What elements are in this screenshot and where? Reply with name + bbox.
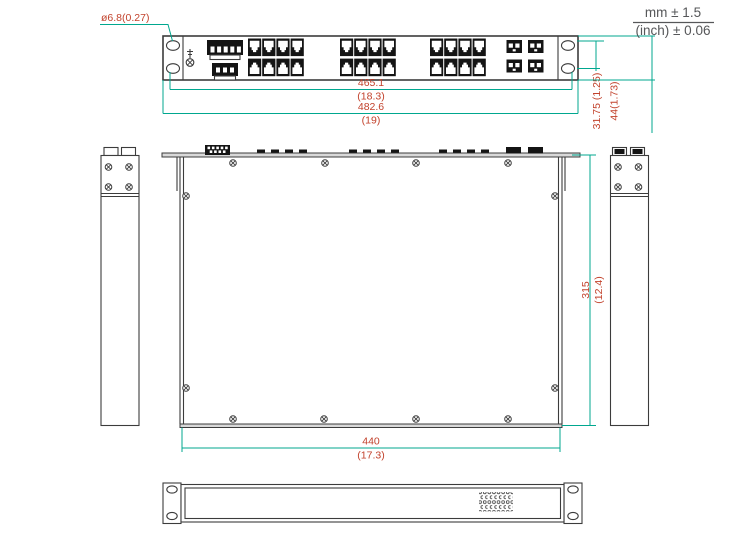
tolerance-imperial-label: (inch) ± 0.06 [636, 23, 711, 38]
rj45-port-icon [458, 59, 471, 77]
rj45-port-icon [383, 39, 396, 57]
screw-icon [322, 160, 329, 167]
rj45-port-icon [248, 39, 261, 57]
screw-icon [321, 416, 328, 423]
tolerance-note: mm ± 1.5 (inch) ± 0.06 [633, 5, 714, 38]
fiber-port-icon [507, 40, 523, 53]
dim-overall-height-label: 44(1.73) [609, 81, 621, 120]
screw-icon [230, 416, 237, 423]
leader-line [100, 25, 173, 42]
mount-hole [562, 41, 575, 51]
rj45-port-icon [276, 39, 289, 57]
rj45-port-icon [262, 39, 275, 57]
rj45-port-icon [444, 59, 457, 77]
bottom-view [163, 483, 582, 524]
fiber-port-icon [507, 60, 523, 73]
chassis-side-walls [180, 157, 562, 424]
top-view [162, 145, 580, 428]
screw-icon [552, 193, 559, 200]
mount-hole [562, 64, 575, 74]
mount-hole [167, 512, 177, 519]
side-view-left [101, 148, 139, 426]
dim-ear-hole-pitch-label: 31.75 (1.25) [591, 73, 603, 130]
dim-overall-width-mm-label: 482.6 [358, 101, 384, 113]
rear-edge [180, 424, 562, 428]
rj45-port-icon [430, 39, 443, 57]
rj45-port-icon [368, 39, 381, 57]
top-view-dimensions: 315 (12.4) 440 (17.3) [182, 155, 605, 462]
mount-hole [568, 486, 578, 493]
screw-icon [126, 184, 133, 191]
terminal-block-3pin-icon [212, 63, 238, 80]
rj45-port-icon [444, 39, 457, 57]
mount-hole [167, 64, 180, 74]
rackmount-switch-dimension-drawing: ø6.8(0.27) 465.1 (18.3) 482.6 (19) 31.75… [0, 0, 751, 553]
dim-depth-mm-label: 315 [580, 281, 592, 299]
screw-icon [413, 160, 420, 167]
screw-icon [230, 160, 237, 167]
dim-mount-hole-diameter-label: ø6.8(0.27) [101, 12, 149, 24]
rj45-port-icon [458, 39, 471, 57]
ear-tab [104, 148, 118, 156]
vent-holes [479, 492, 513, 512]
rj45-port-icon [291, 59, 304, 77]
dim-body-width-in-label: (17.3) [357, 450, 384, 462]
top-view-screws [183, 160, 559, 423]
rj45-port-icon [276, 59, 289, 77]
mount-hole [167, 486, 177, 493]
screw-icon [635, 164, 642, 171]
fiber-port-edge-mark [506, 147, 521, 154]
side-view-right [611, 148, 649, 426]
rj45-port-icon [473, 39, 486, 57]
terminal-block-5pin-icon [207, 40, 243, 60]
fiber-port-edge-mark [528, 147, 543, 154]
rj45-port-icon [340, 59, 353, 77]
rj45-port-icon [354, 39, 367, 57]
connector-side-mark [633, 149, 643, 154]
mount-hole [167, 41, 180, 51]
dimension-drawing-page: ø6.8(0.27) 465.1 (18.3) 482.6 (19) 31.75… [0, 0, 751, 553]
front-view [163, 36, 578, 80]
dim-body-width-mm-label: 440 [362, 436, 380, 448]
connector-side-mark [615, 149, 625, 154]
fiber-port-icon [528, 40, 544, 53]
screw-icon [183, 193, 190, 200]
dim-overall-width-in-label: (19) [362, 115, 381, 127]
screw-icon [615, 184, 622, 191]
rj45-port-icon [248, 59, 261, 77]
rj45-port-icon [473, 59, 486, 77]
screw-icon [552, 385, 559, 392]
screw-icon [105, 184, 112, 191]
dim-rack-hole-spacing-mm-label: 465.1 [358, 77, 384, 89]
screw-icon [183, 385, 190, 392]
dim-line-ear-hole-pitch [577, 41, 604, 71]
screw-icon [126, 164, 133, 171]
screw-icon [615, 164, 622, 171]
mount-hole [568, 512, 578, 519]
rj45-port-icon [430, 59, 443, 77]
rj45-port-icon [291, 39, 304, 57]
screw-icon [413, 416, 420, 423]
rj45-port-icon [383, 59, 396, 77]
fiber-port-icon [528, 60, 544, 73]
dim-depth-in-label: (12.4) [593, 276, 605, 303]
screw-icon [505, 160, 512, 167]
rj45-port-icon [262, 59, 275, 77]
tolerance-metric-label: mm ± 1.5 [645, 5, 701, 20]
rj45-port-icon [340, 39, 353, 57]
rj45-port-icon [368, 59, 381, 77]
screw-icon [505, 416, 512, 423]
screw-icon [105, 164, 112, 171]
screw-icon [635, 184, 642, 191]
terminal-block-top-icon [205, 145, 230, 155]
ear-tab [122, 148, 136, 156]
rj45-port-icon [354, 59, 367, 77]
